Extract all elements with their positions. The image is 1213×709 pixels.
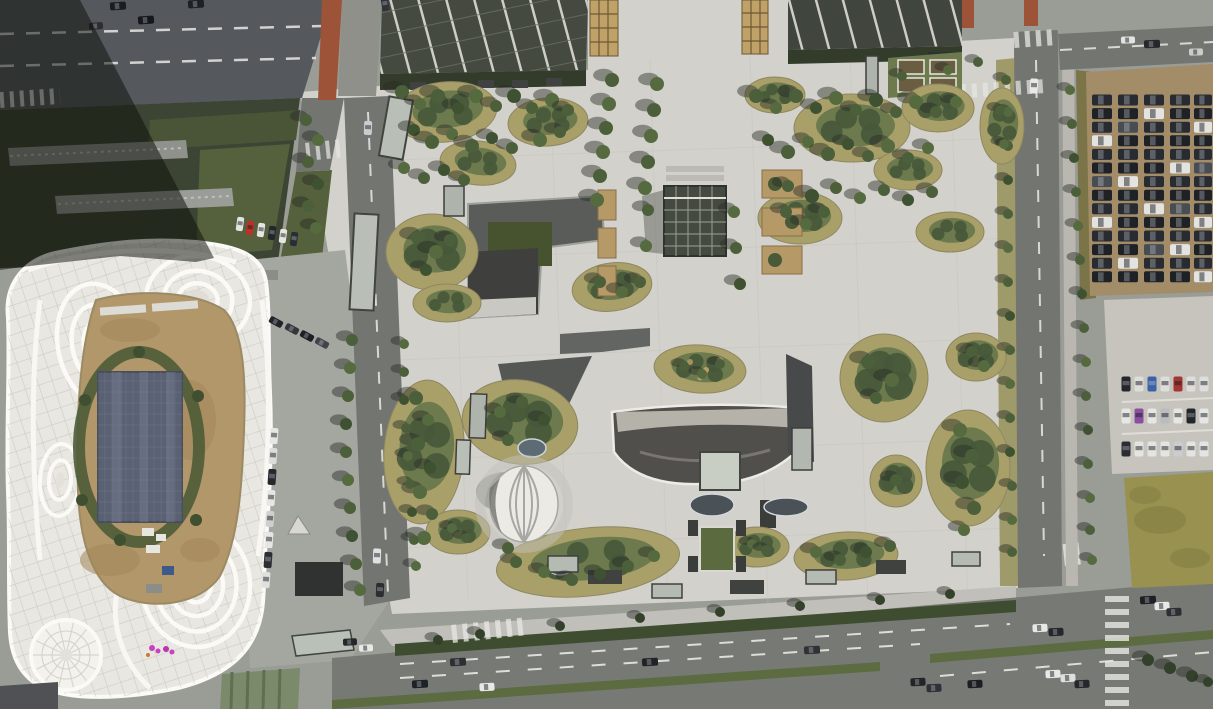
greenhouse-sw [220, 668, 300, 709]
shell-dome [476, 460, 568, 548]
parking-rows [1122, 377, 1209, 457]
aerial-scene [0, 0, 1213, 709]
aerial-photo-satellite-plaza [0, 0, 1213, 709]
